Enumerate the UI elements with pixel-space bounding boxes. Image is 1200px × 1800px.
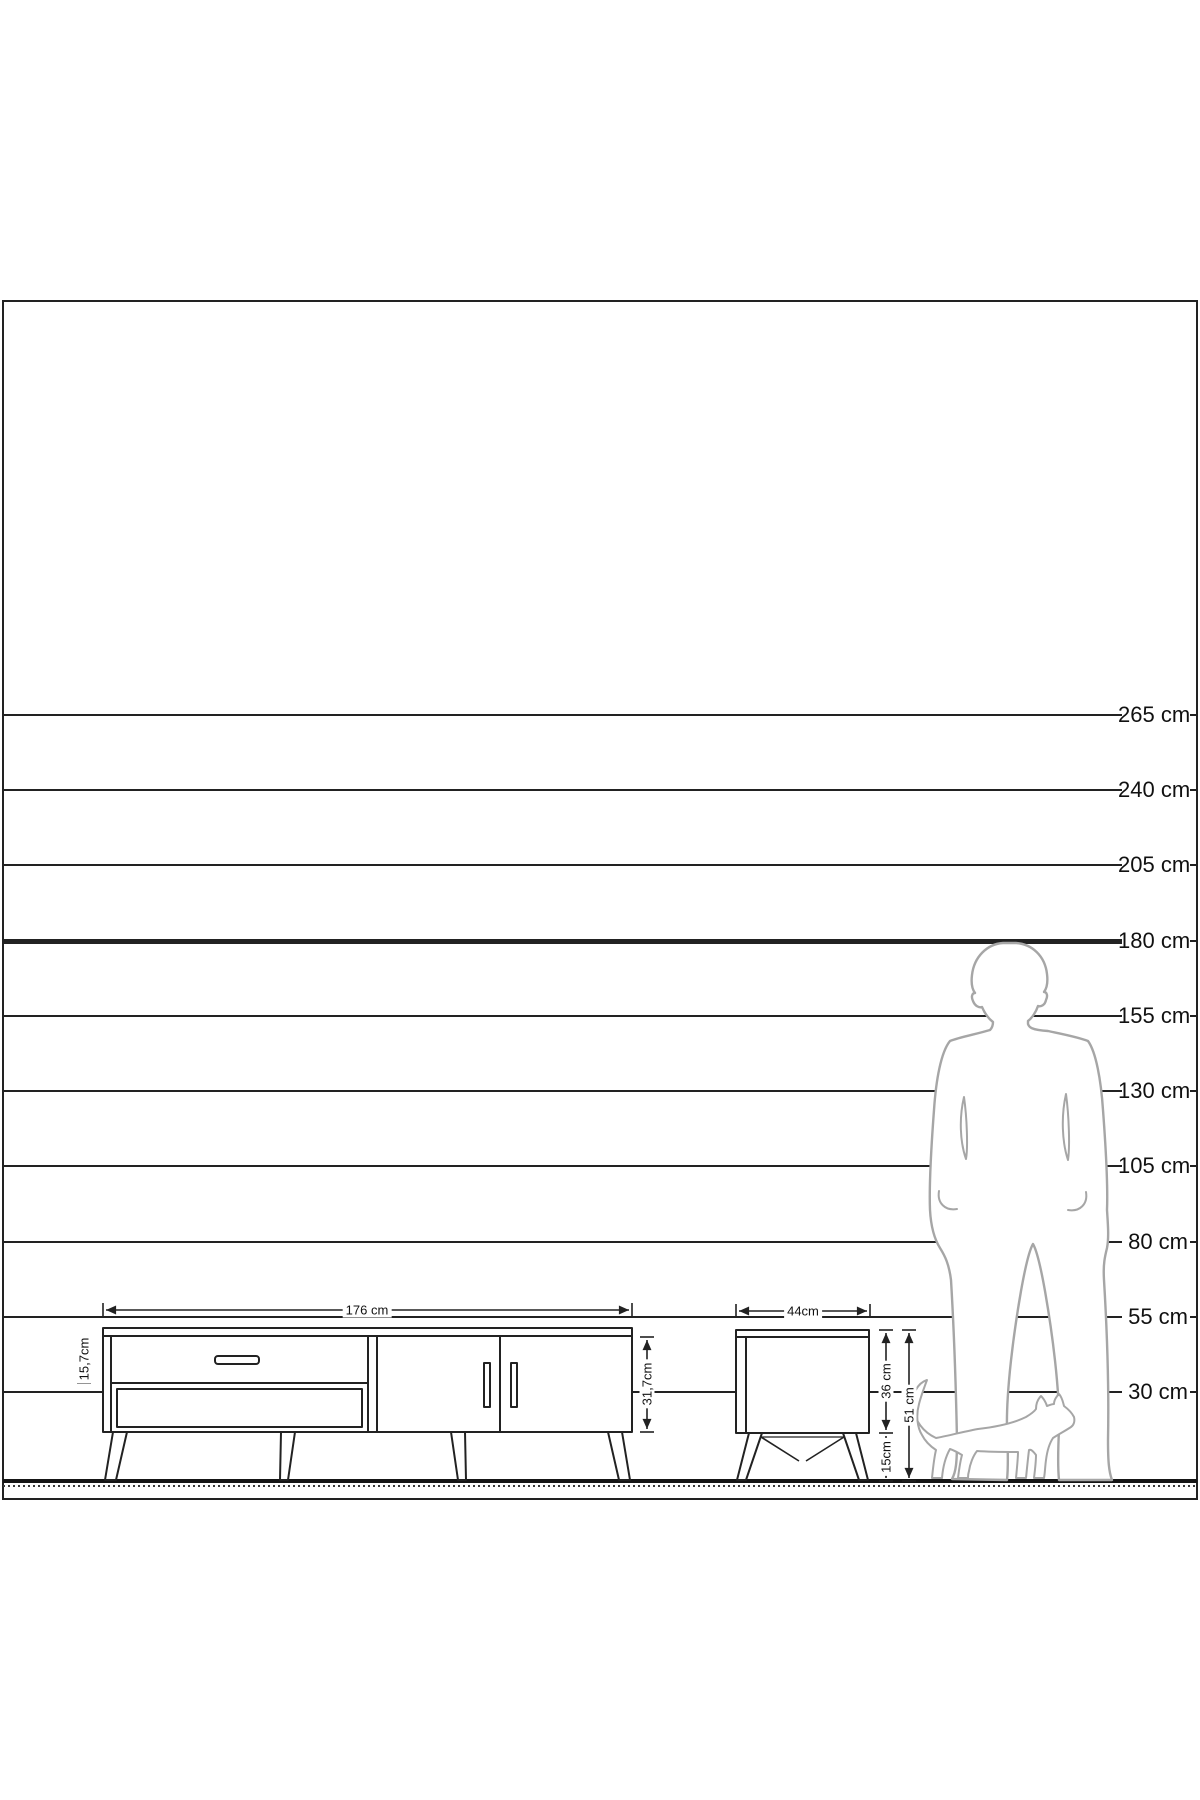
- diagram-canvas: [0, 0, 1200, 1800]
- man-outline: [930, 943, 1112, 1480]
- tv-stand-body-height-label: 31,7cm: [640, 1360, 655, 1409]
- tv-stand-leg: [280, 1432, 295, 1480]
- man-silhouette: [930, 943, 1112, 1480]
- side-table-body-height-label: 36 cm: [879, 1360, 894, 1401]
- tv-stand-open-shelf: [117, 1389, 362, 1427]
- side-table-leg: [737, 1433, 762, 1480]
- side-table-width-label: 44cm: [784, 1304, 822, 1319]
- tv-stand-leg: [451, 1432, 466, 1480]
- side-table-drawing: [736, 1330, 869, 1480]
- side-table-leg-height-label: 15cm: [879, 1438, 894, 1476]
- side-table-total-height-label: 51 cm: [902, 1384, 917, 1425]
- side-table-brace: [806, 1437, 844, 1461]
- tv-stand-door-handle-right: [511, 1363, 517, 1407]
- side-table-body: [736, 1330, 869, 1433]
- side-table-brace: [761, 1437, 799, 1461]
- tv-stand-leg: [608, 1432, 630, 1480]
- tv-stand-width-label: 176 cm: [343, 1303, 392, 1318]
- dimension-diagram: 265 cm240 cm205 cm180 cm155 cm130 cm105 …: [0, 0, 1200, 1800]
- tv-stand-leg: [105, 1432, 127, 1480]
- tv-stand-drawer-height-label: 15,7cm: [77, 1335, 92, 1384]
- tv-stand-drawing: [103, 1328, 632, 1480]
- tv-stand-drawer-handle: [215, 1356, 259, 1364]
- side-table-leg: [843, 1433, 868, 1480]
- tv-stand-door-handle-left: [484, 1363, 490, 1407]
